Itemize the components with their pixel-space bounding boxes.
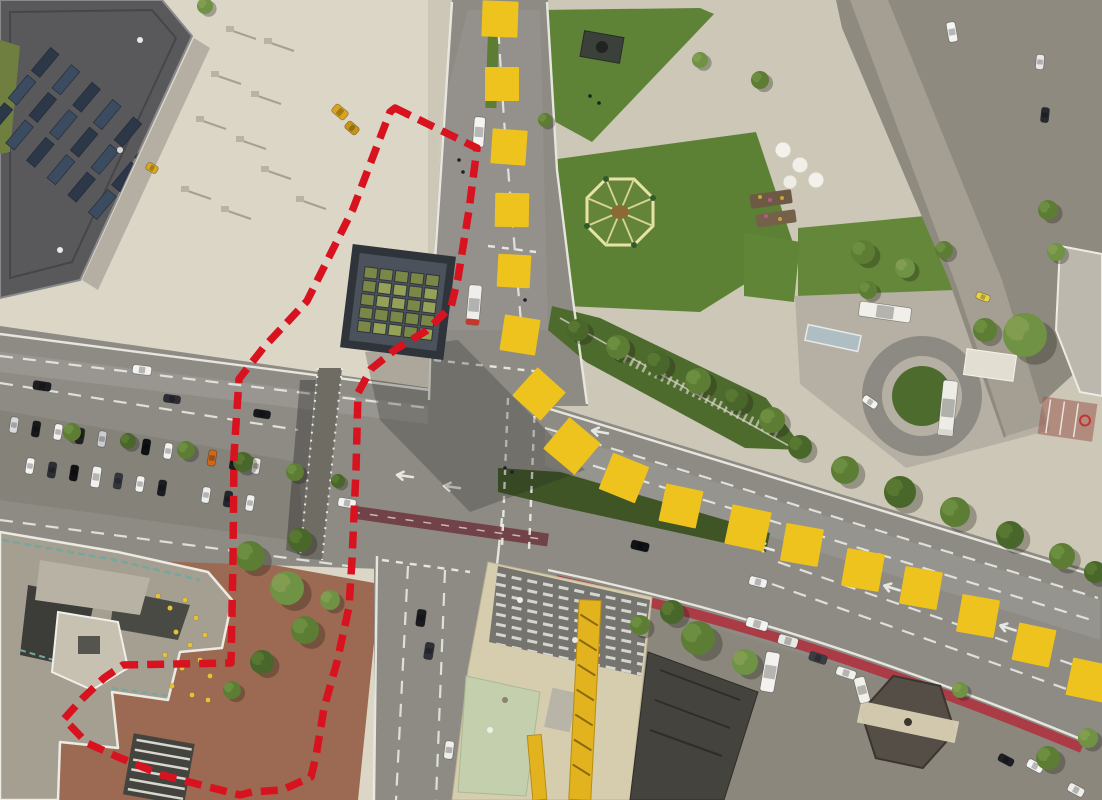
pedestrian [597,101,601,105]
route-marker-square [497,254,532,289]
skylight-grid [357,267,439,341]
route-marker-square [485,67,519,101]
route-marker-square [1011,622,1056,667]
route-marker-square [658,483,703,528]
vehicle [1035,54,1044,70]
route-marker-square [724,504,771,551]
pedestrian [523,298,527,302]
cafe-chair [205,697,210,702]
cafe-chair [162,652,167,657]
pedestrian [510,470,514,474]
cafe-chair [173,629,178,634]
route-marker-square [490,128,527,165]
route-marker-square [899,566,943,610]
cafe-chair [189,692,194,697]
stair-entrance [123,733,195,800]
cafe-chair [182,597,187,602]
route-marker-square [499,314,540,355]
route-marker-square [956,594,1000,638]
route-marker-square [841,548,885,592]
aerial-photo-screenshot [0,0,1102,800]
cafe-chair [207,673,212,678]
aerial-photo [0,0,1102,800]
cafe-chair [167,605,172,610]
cafe-chair [202,632,207,637]
vehicle [415,609,426,627]
route-marker-square [481,0,518,37]
marked-parking [1038,396,1098,441]
pedestrian [503,466,507,470]
vehicle [132,364,152,375]
pedestrian [588,94,592,98]
route-marker-square [780,523,824,567]
pedestrian [457,158,461,162]
cafe-chair [187,642,192,647]
route-marker-square [495,193,530,228]
vehicle [1040,107,1050,123]
pedestrian [461,170,465,174]
vehicle [443,741,454,760]
construction-site [452,562,652,800]
glass-roof-pavilion [340,244,456,360]
cafe-chair [169,683,174,688]
cafe-chair [155,593,160,598]
cafe-chair [193,615,198,620]
